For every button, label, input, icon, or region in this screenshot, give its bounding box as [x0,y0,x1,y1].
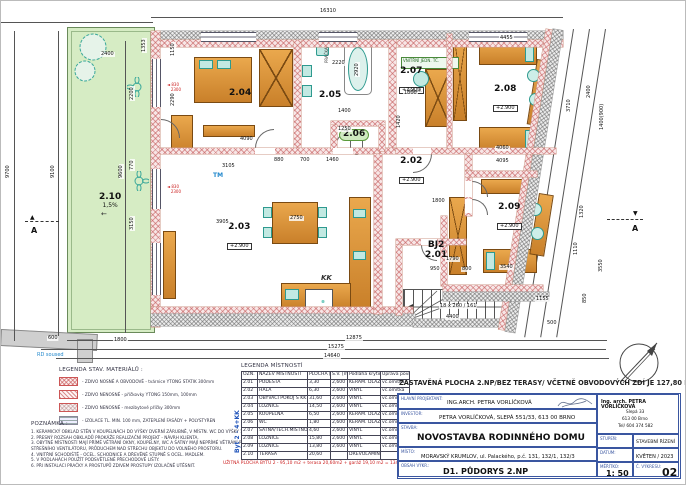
plan-annotation: A [632,225,638,233]
table-cell: 2.10 [242,452,258,460]
table-row: 2.09LOŽNICE13,802,600VINYLvc.omítka [242,444,410,452]
dim-label: 4060 [495,146,510,151]
table-row: 2.04LOŽNICE14,502,600VINYLvc.omítka [242,404,410,412]
room-number: 2.03 [227,223,252,233]
plan-annotation: RD soused [37,353,64,358]
material-label: - ZDIVO NENOSNÉ - mezibytové příčky 300m… [82,405,180,410]
table-row: 2.03OBÝVACÍ POKOJ S KK31,602,600VINYLvc.… [242,396,410,404]
plan-annotation: A [31,227,37,235]
dim-label: 3150 [130,216,135,231]
room-label: 2.02+2.900 [399,157,424,184]
door-gap [255,148,275,154]
dim-line-terrace [125,41,126,333]
room-label: 2.03+2.900 [227,223,252,250]
table-cell: 2.02 [242,388,258,396]
plan-annotation: TM [213,173,223,179]
boundary-line [1,22,153,23]
kitchen-appliance [353,209,366,218]
table-header: OZN. [242,372,258,380]
dim-label: 2200 [130,86,135,101]
window [201,32,256,42]
table-cell: HALA [258,388,308,396]
partition [443,285,543,292]
table-cell: 2,600 [331,388,348,396]
partition [389,40,396,150]
datum-label: DATUM: [600,450,616,455]
dim-line-left-inner [58,31,59,341]
table-cell: TERASA [258,452,308,460]
neighbor-building-wing [77,339,93,363]
table-cell: 2.05 [242,412,258,420]
table-cell: 2.08 [242,436,258,444]
plan-annotation: VNITŘNÍ JEDN. TČ. [403,59,439,63]
plan-annotation: BOJLER [407,89,422,93]
dim-label: 1250 [337,127,352,132]
dim-label: 9700 [6,164,11,179]
table-cell: ŠATNA/TECH.MÍSTNOST [258,428,308,436]
table-header: NÁZEV MÍSTNOSTI [258,372,308,380]
furniture-wardrobe [453,35,467,121]
dim-label: 9600 [119,164,124,179]
table-header-row: OZN.NÁZEV MÍSTNOSTIPLOCHA [m²]S.V. [m]Po… [242,372,410,380]
room-number: 2.09 [497,203,522,213]
obsah-value: D1. PŮDORYS 2.NP [443,467,528,476]
room-elevation: +2.900 [399,177,424,185]
furniture-wardrobe [259,49,293,107]
room-label: 2.05 [319,91,341,101]
dim-label: 600 [47,336,59,341]
table-cell: 3,30 [308,380,331,388]
table-cell: 2.01 [242,380,258,388]
window [319,32,357,42]
plan-annotation: ← [101,211,107,218]
room-label: 2.09+2.900 [497,203,522,230]
chair [263,207,272,218]
table-cell: LOŽNICE [258,436,308,444]
dim-line-bottom-2 [41,349,606,350]
table-cell: VINYL [348,436,381,444]
partition [160,148,396,154]
table-cell: VINYL [348,444,381,452]
projektant-label: HLAVNÍ PROJEKTANT: [401,396,443,401]
stavba-value: NOVOSTAVBA RODINNÉHO DOMU [417,433,585,443]
obsah-label: OBSAH VÝKR.: [401,463,430,468]
material-label: - ZDIVO NOSNÉ A OBVODOVÉ - tvárnice YTON… [82,379,214,384]
table-cell: 15,80 [308,436,331,444]
section-line-left [25,221,59,222]
investor-value: PETRA VORLÍČKOVÁ, SLEPÁ 551/33, 613 00 B… [439,415,575,421]
stove [305,289,333,308]
stavba-label: STAVBA: [401,425,418,430]
table-header: PLOCHA [m²] [308,372,331,380]
door-gap [465,199,472,213]
dim-label: 1353 [142,38,147,53]
table-cell: KERAM. DLAŽBA [348,420,381,428]
plant-icon [129,171,149,191]
plan-annotation: KK [321,275,332,282]
dim-label: 500 [546,321,558,326]
investor-label: INVESTOR: [401,411,423,416]
dim-label: 12875 [345,336,363,341]
room-number: 2.08 [493,85,518,95]
material-swatch-icon [59,377,78,386]
table-cell: 2,600 [331,436,348,444]
kitchen-sink [285,289,299,300]
material-swatch-icon [59,403,78,412]
dim-label: 3550 [599,258,604,273]
room-slope: 1,5% [99,203,121,210]
table-cell: 2,600 [331,404,348,412]
table-cell: 2,600 [331,396,348,404]
door-gap [465,181,472,197]
dim-label: 4455 [499,36,514,41]
table-cell: WC [258,420,308,428]
table-cell: VINYL [348,388,381,396]
table-cell: 13,80 [308,444,331,452]
dim-label: 3905 [215,220,230,225]
dim-label: 1320 [580,204,585,219]
room-elevation: +2.900 [493,105,518,113]
dim-label: 700 [299,158,311,163]
table-cell: KERAM. DLAŽBA [348,412,381,420]
chair [318,227,327,238]
misto-value: MORAVSKÝ KRUMLOV, ul. Palackého, p.č. 13… [421,454,575,460]
note-line: 1. KERAMICKÝ OBKLAD STĚN V KOUPELNÁCH DO… [31,429,251,435]
room-table: OZN.NÁZEV MÍSTNOSTIPLOCHA [m²]S.V. [m]Po… [241,371,410,460]
dim-label: 3540 [499,265,514,270]
dim-label: 2290 [171,92,176,107]
table-cell: 1,80 [308,420,331,428]
cell-architect-card: Ing. arch. PETRA VORLÍČKOVÁ Slepá 33 613… [597,394,679,434]
cvykresu-value: 02 [662,466,677,479]
partition [379,125,385,151]
dim-label: 4095 [495,159,510,164]
cell-projektant: HLAVNÍ PROJEKTANT: ING.ARCH. PETRA VORLÍ… [398,394,597,409]
room-table-footer: UŽITNÁ PLOCHA BYTU 2 - 95,10 m2 + terasa… [223,461,414,466]
table-row: 2.05KOUPELNA6,502,600KERAM. DLAŽBAvc.omí… [242,412,410,420]
dim-label: 2400 [100,52,115,57]
door-arc [472,199,488,215]
dim-label: 2920 [355,62,360,77]
dim-label: 2750 [289,216,304,221]
projektant-value: ING.ARCH. PETRA VORLÍČKOVÁ [447,400,532,406]
cell-datum-label: DATUM: [597,448,633,462]
table-cell: 2,600 [331,444,348,452]
dim-label: 880 [273,158,285,163]
dim-label: 1110 [574,241,579,256]
table-cell: 6,50 [308,412,331,420]
table-cell: 2,600 [331,420,348,428]
cell-datum-value: KVĚTEN / 2023 [633,448,679,462]
table-cell: LOŽNICE [258,404,308,412]
door-arc [255,129,274,148]
cell-cvykresu: Č. VÝKRESU: 02 [633,462,679,477]
kitchen-appliance [353,251,366,260]
furniture-dining-table [272,202,318,244]
cell-meritko: MĚŘÍTKO: 1: 50 [597,462,633,477]
cell-stavba: STAVBA: NOVOSTAVBA RODINNÉHO DOMU [398,423,597,447]
bed-pillow [199,60,213,69]
dim-label: 770 [130,159,135,171]
dim-label: 1400(900) [600,103,605,131]
table-cell: VINYL [348,396,381,404]
table-row: 2.02HALA6,302,600VINYLvc.omítka [242,388,410,396]
table-cell [331,452,348,460]
tree-icon [71,31,127,93]
dim-line-left-outer [14,31,15,341]
dim-label: 1420 [397,114,402,129]
window [152,169,161,209]
drawing-sheet: 1631097009100960024001353220077031501150… [0,0,686,485]
table-row: 2.01PODESTA3,302,600KERAM. DLAŽBAvc.omít… [242,380,410,388]
chair [318,207,327,218]
dim-label: 2400 [587,84,592,99]
dim-label: 3710 [567,98,572,113]
cell-stupen-value: STAVEBNÍ ŘÍZENÍ [633,434,679,448]
partition [294,40,301,150]
table-header: S.V. [m] [331,372,348,380]
room-number: 2.02 [399,157,424,167]
dim-label: 16310 [319,9,337,14]
door-gap [413,148,431,154]
table-cell: 2,600 [331,428,348,436]
partition-insulation [443,292,549,301]
material-swatch-icon [59,390,78,399]
title-block: HLAVNÍ PROJEKTANT: ING.ARCH. PETRA VORLÍ… [397,393,681,479]
chair [263,227,272,238]
table-header: Podlaha krytina [348,372,381,380]
partition [465,171,537,177]
dim-label: 1150 [171,42,176,57]
cell-stupen-label: STUPEŇ: [597,434,633,448]
dim-line-bottom-1 [67,340,607,341]
bed-pillow [486,252,495,270]
dim-line-top [151,17,563,18]
dim-label: 4090 [239,137,254,142]
dim-label: 800 [461,267,473,272]
table-cell: KOUPELNA [258,412,308,420]
table-cell: 14,50 [308,404,331,412]
room-number: 2.01 [425,251,447,261]
table-cell: 2,600 [331,380,348,388]
tv-bench [163,231,176,299]
architect-tel: Tel/ 604 374 582 [618,423,653,428]
dim-label: 15275 [327,345,345,350]
legend-material-row: - ZDIVO NOSNÉ A OBVODOVÉ - tvárnice YTON… [59,377,239,386]
room-number: 2.07 [399,67,424,77]
cvykresu-label: Č. VÝKRESU: [636,464,661,469]
room-label: 2.08+2.900 [493,85,518,112]
legend-material-row: - ZDIVO NENOSNÉ - příčkovky YTONG 150mm,… [59,390,239,399]
window [469,32,527,42]
partition [374,154,382,314]
table-cell: 20,60 [308,452,331,460]
stupen-value: STAVEBNÍ ŘÍZENÍ [636,440,675,445]
table-cell: 6,30 [308,388,331,396]
cell-misto: MÍSTO: MORAVSKÝ KRUMLOV, ul. Palackého, … [398,447,597,461]
room-number: 2.04 [229,89,251,99]
plan-annotation: ▲ [30,215,35,221]
washbasin [302,65,312,77]
level-mark: ◄ 830 2300 [167,185,181,195]
dim-label: 1460 [325,158,340,163]
table-row: 2.06WC1,802,600KERAM. DLAŽBAvc.omítka/ke… [242,420,410,428]
architect-addr1: Slepá 33 [626,409,644,414]
table-cell: DŘEVOLAMINÁT [348,452,381,460]
dim-label: 14640 [323,354,341,359]
note-line: 6. PŘI INSTALACI PRAČKY A PROSTUPŮ ZDIVE… [31,463,251,469]
dim-label: 1790 [445,257,460,262]
dim-label: 1400 [337,109,352,114]
table-row: 2.07ŠATNA/TECH.MÍSTNOST4,602,600VINYLvc.… [242,428,410,436]
level-mark: ◄ 830 2300 [167,83,181,93]
material-label: - ZDIVO NENOSNÉ - příčkovky YTONG 150mm,… [82,392,197,397]
dim-label: 9100 [51,164,56,179]
built-area-note: ZASTAVĚNÁ PLOCHA 2.NP/BEZ TERASY/ VČETNĚ… [399,379,686,387]
table-cell: OBÝVACÍ POKOJ S KK [258,396,308,404]
datum-value: KVĚTEN / 2023 [636,454,673,460]
table-cell: 4,60 [308,428,331,436]
dim-label: 2220 [331,61,346,66]
dim-label: 850 [583,292,588,304]
table-cell: 2.06 [242,420,258,428]
washbasin [302,85,312,97]
dim-label: 950 [429,267,441,272]
room-elevation: +2.900 [227,243,252,251]
room-label: BJ22.01 [425,241,447,261]
dim-label: 1800 [113,338,128,343]
table-cell: 2,600 [331,412,348,420]
table-row: 2.10TERASA20,60DŘEVOLAMINÁT [242,452,410,460]
legend-material-row: - ZDIVO NENOSNÉ - mezibytové příčky 300m… [59,403,239,412]
window [152,59,161,107]
table-cell: 2.07 [242,428,258,436]
room-table-side-label: Byt 2 - 4+KK [234,410,241,453]
dim-label: 1800 [431,199,446,204]
plan-annotation: ▼ [633,211,638,217]
room-label: 2.101,5% [99,193,121,209]
table-cell: 2.03 [242,396,258,404]
table-cell: KERAM. DLAŽBA [348,380,381,388]
stupen-label: STUPEŇ: [600,436,617,441]
notes-title: POZNÁMKA : [31,421,251,427]
door-gap [333,148,353,154]
architect-addr2: 613 00 Brno [622,416,648,421]
legend-materials-title: LEGENDA STAV. MATERIÁLŮ : [59,367,239,373]
section-line-right [607,219,643,220]
dim-label: 18 x 260 / 161 [439,304,477,309]
dim-label: 4400 [445,315,460,320]
meritko-value: 1: 50 [606,469,629,478]
signature [556,396,594,409]
notes-block: POZNÁMKA : 1. KERAMICKÝ OBKLAD STĚN V KO… [31,421,251,469]
room-label: 2.04 [229,89,251,99]
misto-label: MÍSTO: [401,449,415,454]
chair [531,227,544,240]
window [152,243,161,295]
table-row: 2.08LOŽNICE15,802,600VINYLvc.omítka [242,436,410,444]
table-cell: VINYL [348,404,381,412]
legend-materials: LEGENDA STAV. MATERIÁLŮ : - ZDIVO NOSNÉ … [59,367,239,429]
bed-pillow [217,60,231,69]
table-cell: LOŽNICE [258,444,308,452]
table-cell: 2.04 [242,404,258,412]
table-cell: VINYL [348,428,381,436]
note-line: STŘEŠNÍHO VENTILÁTORU, PRŮDUCHEM NAD STŘ… [31,446,251,452]
dim-label: 1155 [535,297,550,302]
table-cell: PODESTA [258,380,308,388]
dim-label: 3105 [221,164,236,169]
partition [447,34,452,148]
table-cell: 2.09 [242,444,258,452]
room-table-title: LEGENDA MÍSTNOSTÍ [241,363,303,369]
room-number: 2.05 [319,91,341,101]
cell-obsah: OBSAH VÝKR.: D1. PŮDORYS 2.NP [398,461,597,477]
room-elevation: +2.900 [497,223,522,231]
table-cell: 31,60 [308,396,331,404]
wall-bottom-insulation [151,314,415,326]
cell-investor: INVESTOR: PETRA VORLÍČKOVÁ, SLEPÁ 551/33… [398,409,597,423]
plan-annotation: PRAČKA [325,47,329,63]
partition [396,245,402,315]
